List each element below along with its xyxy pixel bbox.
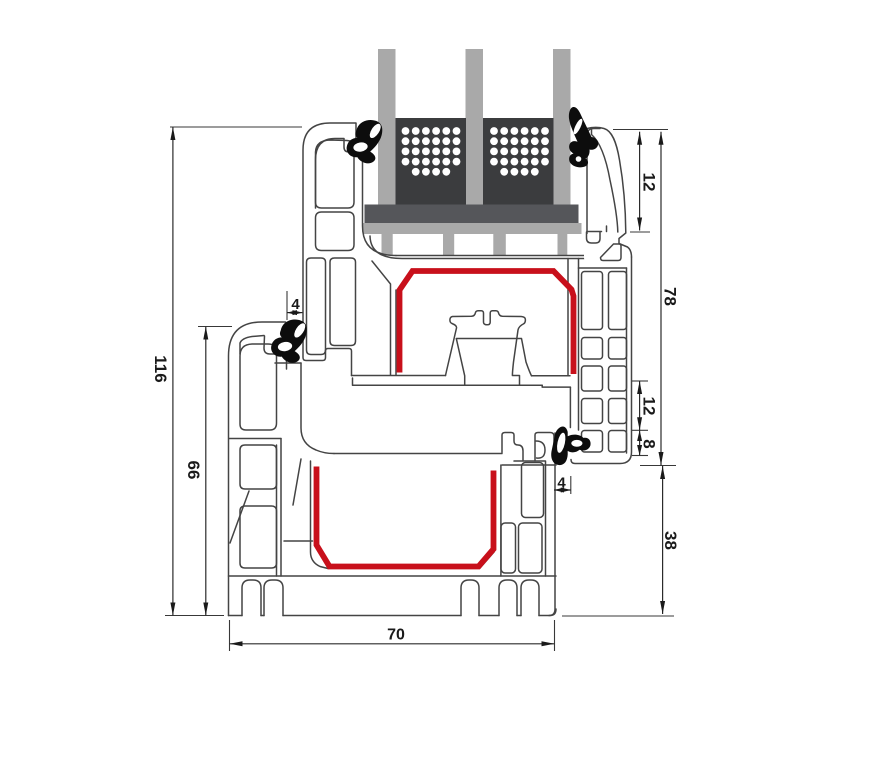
svg-text:38: 38 bbox=[661, 531, 680, 550]
svg-text:12: 12 bbox=[640, 173, 659, 192]
svg-text:8: 8 bbox=[640, 439, 659, 448]
svg-text:116: 116 bbox=[151, 355, 170, 382]
svg-text:12: 12 bbox=[640, 397, 659, 416]
svg-text:78: 78 bbox=[661, 287, 680, 306]
svg-text:70: 70 bbox=[387, 627, 405, 644]
svg-text:4: 4 bbox=[291, 296, 300, 313]
svg-text:66: 66 bbox=[184, 461, 203, 480]
svg-text:4: 4 bbox=[557, 475, 566, 492]
